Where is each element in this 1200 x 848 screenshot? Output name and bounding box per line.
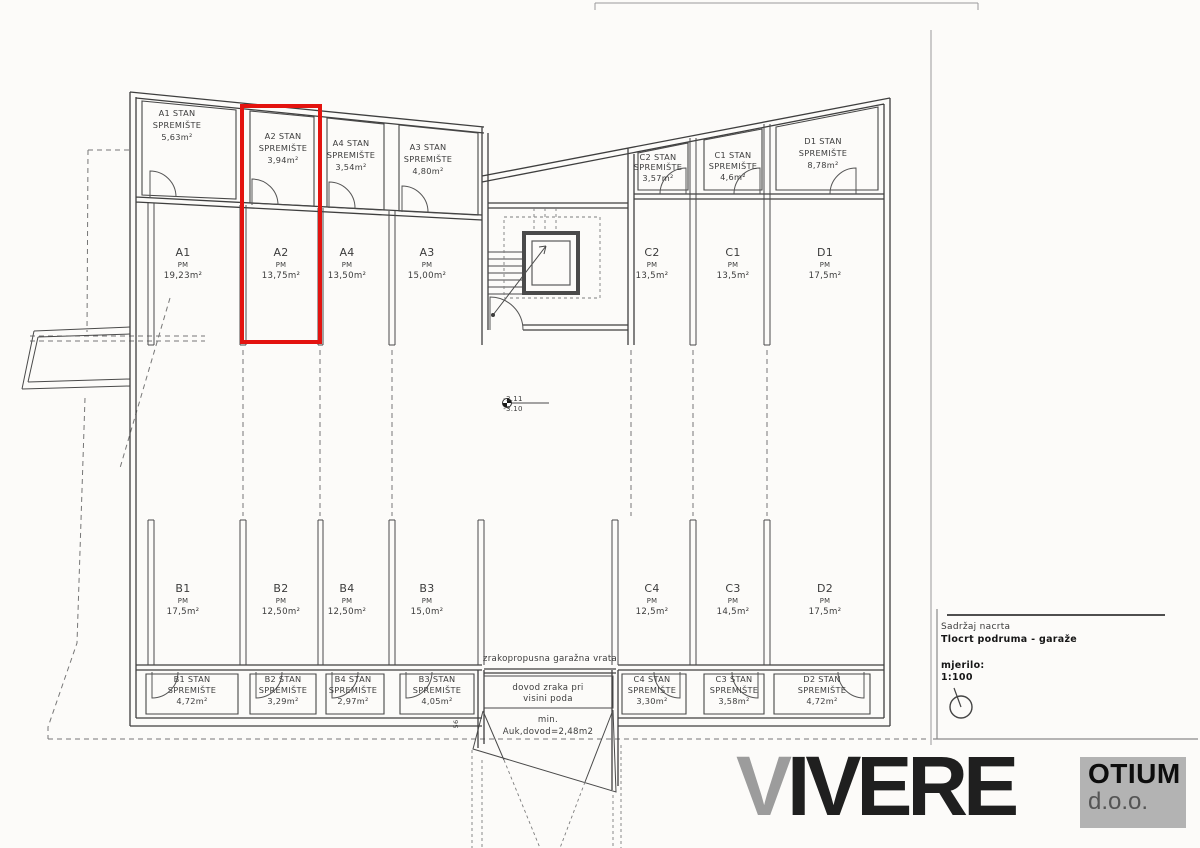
- stall-area: 12,50m²: [328, 607, 367, 617]
- stall-id: B3: [419, 582, 434, 595]
- otium-company-suffix: d.o.o.: [1088, 790, 1186, 814]
- stall-id: C2: [644, 246, 659, 259]
- stall-id: C3: [725, 582, 740, 595]
- stall-area: 12,5m²: [636, 607, 669, 617]
- title-scale-value: 1:100: [941, 672, 973, 683]
- storage-type: SPREMIŠTE: [259, 142, 308, 153]
- storage-type: SPREMIŠTE: [628, 684, 677, 695]
- title-content-label: Sadržaj nacrta: [941, 622, 1010, 632]
- site-dashed-lines: [30, 150, 930, 739]
- parking-label-a3: A3 PM 15,00m²: [408, 246, 447, 281]
- storage-type: SPREMIŠTE: [710, 684, 759, 695]
- storage-name: A4 STAN: [333, 138, 370, 148]
- parking-label-b4: B4 PM 12,50m²: [328, 582, 367, 617]
- storage-label-c1: C1 STAN SPREMIŠTE 4,6m²: [709, 150, 758, 182]
- parking-label-b1: B1 PM 17,5m²: [167, 582, 200, 617]
- stall-id: C1: [725, 246, 740, 259]
- storage-area: 4,05m²: [421, 696, 452, 706]
- storage-type: SPREMIŠTE: [799, 147, 848, 158]
- storage-type: SPREMIŠTE: [634, 161, 683, 172]
- storage-label-c2: C2 STAN SPREMIŠTE 3,57m²: [634, 152, 683, 183]
- storage-area: 4,72m²: [176, 696, 207, 706]
- storage-label-c3: C3 STAN SPREMIŠTE 3,58m²: [710, 674, 759, 706]
- stall-kind: PM: [728, 261, 739, 269]
- storage-name: C3 STAN: [716, 674, 753, 684]
- storage-label-a1: A1 STAN SPREMIŠTE 5,63m²: [153, 108, 202, 142]
- stall-kind: PM: [178, 261, 189, 269]
- parking-label-b3: B3 PM 15,0m²: [411, 582, 444, 617]
- storage-area: 2,97m²: [337, 696, 368, 706]
- stall-kind: PM: [820, 597, 831, 605]
- storage-label-c4: C4 STAN SPREMIŠTE 3,30m²: [628, 674, 677, 706]
- vivere-logo-rest: IVERE: [787, 739, 1014, 833]
- title-content-value: Tlocrt podruma - garaže: [941, 634, 1077, 645]
- level-marker: -3.11 -3.10: [503, 395, 550, 413]
- stair-arrow-origin: [491, 313, 495, 317]
- stall-area: 17,5m²: [167, 607, 200, 617]
- storage-name: D2 STAN: [803, 674, 841, 684]
- storage-area: 3,94m²: [267, 155, 298, 165]
- stall-id: A4: [339, 246, 354, 259]
- title-scale-label: mjerilo:: [941, 660, 985, 671]
- storage-area: 4,6m²: [720, 172, 746, 182]
- storage-area: 8,78m²: [807, 160, 838, 170]
- stall-kind: PM: [647, 261, 658, 269]
- storage-name: A2 STAN: [265, 131, 302, 141]
- storage-type: SPREMIŠTE: [709, 160, 758, 171]
- storage-label-b1: B1 STAN SPREMIŠTE 4,72m²: [168, 674, 217, 706]
- stair-treads: [488, 252, 522, 294]
- air-supply-note-line1: dovod zraka pri: [512, 683, 583, 693]
- stall-kind: PM: [422, 261, 433, 269]
- parking-label-d1: D1 PM 17,5m²: [809, 246, 842, 281]
- storage-area: 3,30m²: [636, 696, 667, 706]
- stall-id: A3: [419, 246, 434, 259]
- min-duct-note-line2: Auk,dovod=2,48m2: [503, 727, 594, 737]
- parking-label-a4: A4 PM 13,50m²: [328, 246, 367, 281]
- storage-area: 4,72m²: [806, 696, 837, 706]
- floor-plan-drawing: -3.11 -3.10 A1 STAN SPREMIŠTE 5,63m² A2 …: [0, 0, 1200, 848]
- stall-kind: PM: [342, 597, 353, 605]
- storage-name: C2 STAN: [640, 152, 677, 162]
- storage-label-d2: D2 STAN SPREMIŠTE 4,72m²: [798, 674, 847, 706]
- door-swing-arcs: [150, 168, 864, 698]
- stall-kind: PM: [422, 597, 433, 605]
- storage-area: 4,80m²: [412, 166, 443, 176]
- stall-id: B2: [273, 582, 288, 595]
- level-bottom-label: -3.10: [503, 405, 523, 413]
- stall-id: D2: [817, 582, 833, 595]
- context-lines: [595, 3, 978, 745]
- storage-area: 3,57m²: [642, 173, 673, 183]
- parking-label-b2: B2 PM 12,50m²: [262, 582, 301, 617]
- otium-company-name: OTIUM: [1088, 760, 1186, 788]
- ramp-dashed-lines: [472, 745, 621, 848]
- parking-label-c1: C1 PM 13,5m²: [717, 246, 750, 281]
- storage-area: 5,63m²: [161, 132, 192, 142]
- storage-name: B1 STAN: [174, 674, 211, 684]
- stall-area: 13,5m²: [636, 271, 669, 281]
- storage-name: A1 STAN: [159, 108, 196, 118]
- stall-kind: PM: [647, 597, 658, 605]
- stall-area: 15,0m²: [411, 607, 444, 617]
- otium-logo-box: OTIUM d.o.o.: [1080, 757, 1186, 828]
- title-block: Sadržaj nacrta Tlocrt podruma - garaže m…: [933, 609, 1198, 739]
- elevator-car: [532, 241, 570, 285]
- stall-area: 13,75m²: [262, 271, 301, 281]
- storage-name: D1 STAN: [804, 136, 842, 146]
- storage-type: SPREMIŠTE: [327, 149, 376, 160]
- storage-area: 3,54m²: [335, 162, 366, 172]
- min-duct-note-line1: min.: [538, 715, 558, 725]
- storage-type: SPREMIŠTE: [413, 684, 462, 695]
- stall-area: 12,50m²: [262, 607, 301, 617]
- stall-id: A1: [175, 246, 190, 259]
- stall-area: 17,5m²: [809, 607, 842, 617]
- stall-id: A2: [273, 246, 288, 259]
- storage-area: 3,58m²: [718, 696, 749, 706]
- storage-name: B3 STAN: [419, 674, 456, 684]
- vivere-logo: VIVERE: [736, 742, 1086, 830]
- stall-area: 13,50m²: [328, 271, 367, 281]
- storage-label-b2: B2 STAN SPREMIŠTE 3,29m²: [259, 674, 308, 706]
- stall-area: 14,5m²: [717, 607, 750, 617]
- stall-area: 17,5m²: [809, 271, 842, 281]
- stall-kind: PM: [178, 597, 189, 605]
- stall-kind: PM: [342, 261, 353, 269]
- storage-name: B4 STAN: [335, 674, 372, 684]
- storage-name: C1 STAN: [715, 150, 752, 160]
- stall-id: C4: [644, 582, 659, 595]
- storage-type: SPREMIŠTE: [329, 684, 378, 695]
- parking-label-d2: D2 PM 17,5m²: [809, 582, 842, 617]
- level-top-label: -3.11: [503, 395, 523, 403]
- stall-id: B4: [339, 582, 354, 595]
- storage-label-b3: B3 STAN SPREMIŠTE 4,05m²: [413, 674, 462, 706]
- parking-label-c4: C4 PM 12,5m²: [636, 582, 669, 617]
- storage-label-a3: A3 STAN SPREMIŠTE 4,80m²: [404, 142, 453, 176]
- storage-area: 3,29m²: [267, 696, 298, 706]
- storage-label-d1: D1 STAN SPREMIŠTE 8,78m²: [799, 136, 848, 170]
- stall-id: D1: [817, 246, 833, 259]
- stall-area: 19,23m²: [164, 271, 203, 281]
- parking-label-a2: A2 PM 13,75m²: [262, 246, 301, 281]
- stall-kind: PM: [820, 261, 831, 269]
- stall-area: 13,5m²: [717, 271, 750, 281]
- parking-label-c2: C2 PM 13,5m²: [636, 246, 669, 281]
- air-supply-note-line2: visini poda: [523, 694, 573, 704]
- dimension-label: 56: [452, 720, 460, 729]
- storage-name: C4 STAN: [634, 674, 671, 684]
- stall-kind: PM: [276, 261, 287, 269]
- parking-label-a1: A1 PM 19,23m²: [164, 246, 203, 281]
- storage-type: SPREMIŠTE: [153, 119, 202, 130]
- stall-kind: PM: [276, 597, 287, 605]
- vivere-logo-initial: V: [736, 739, 787, 833]
- stall-area: 15,00m²: [408, 271, 447, 281]
- storage-label-b4: B4 STAN SPREMIŠTE 2,97m²: [329, 674, 378, 706]
- storage-label-a2: A2 STAN SPREMIŠTE 3,94m²: [259, 131, 308, 165]
- a2-unit-highlight-box: [242, 106, 320, 342]
- storage-type: SPREMIŠTE: [404, 153, 453, 164]
- stall-kind: PM: [728, 597, 739, 605]
- stall-id: B1: [175, 582, 190, 595]
- storage-type: SPREMIŠTE: [168, 684, 217, 695]
- parking-label-c3: C3 PM 14,5m²: [717, 582, 750, 617]
- storage-label-a4: A4 STAN SPREMIŠTE 3,54m²: [327, 138, 376, 172]
- storage-type: SPREMIŠTE: [798, 684, 847, 695]
- garage-door-note: zrakopropusna garažna vrata: [483, 654, 617, 664]
- storage-type: SPREMIŠTE: [259, 684, 308, 695]
- storage-name: B2 STAN: [265, 674, 302, 684]
- storage-name: A3 STAN: [410, 142, 447, 152]
